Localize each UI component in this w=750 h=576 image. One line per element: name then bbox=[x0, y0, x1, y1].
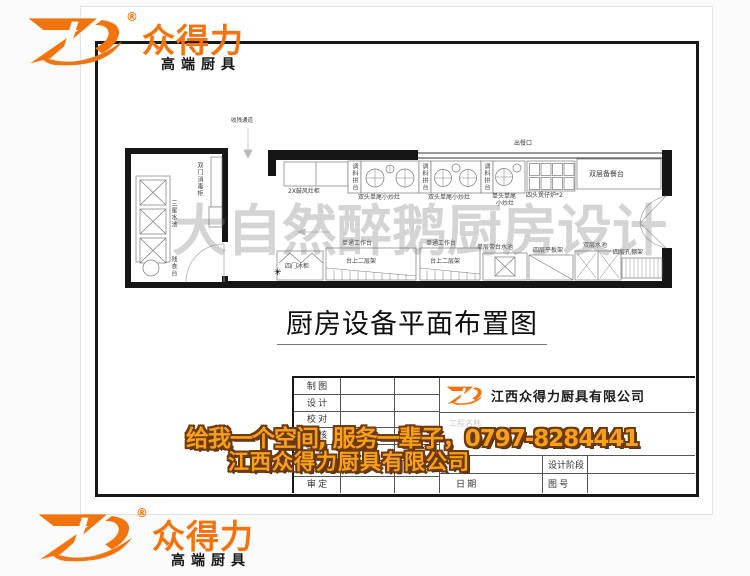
label-prep-counter: 双层备餐台 bbox=[589, 170, 624, 178]
titleblock-date-label: 日 期 bbox=[456, 477, 476, 490]
zd-mark-icon bbox=[15, 10, 137, 70]
titleblock-line bbox=[542, 455, 543, 493]
sheet-canvas: 收残通道 出餐口 双门消毒柜 三星水池 残食台 2X鼓风灶柜 调料拼台 调料拼台… bbox=[0, 0, 750, 530]
titleblock-line bbox=[587, 455, 588, 493]
footer-logo-cutoff: ® 众得力 高端厨具 bbox=[25, 504, 275, 576]
label-star-marker: ✳ bbox=[274, 268, 282, 278]
header-logo: ® 众得力 高端厨具 bbox=[15, 8, 265, 80]
titleblock-row-finalize: 审 定 bbox=[294, 476, 340, 492]
registered-mark: ® bbox=[136, 506, 148, 520]
label-serving-window: 出餐口 bbox=[514, 141, 532, 148]
brand-tagline: 高端厨具 bbox=[161, 54, 241, 74]
titleblock-row-draw: 制 图 bbox=[294, 378, 340, 394]
titleblock-zd-logo bbox=[444, 383, 486, 407]
titleblock-company: 江西众得力厨具有限公司 bbox=[491, 386, 645, 405]
brand-tagline: 高端厨具 bbox=[171, 550, 251, 570]
titleblock-stage-label: 设计阶段 bbox=[548, 458, 584, 471]
ad-company-name: 江西众得力厨具有限公司 bbox=[228, 446, 470, 476]
titleblock-line bbox=[439, 455, 695, 456]
label-passage: 收残通道 bbox=[231, 118, 253, 124]
titleblock-number-label: 图 号 bbox=[548, 477, 568, 490]
titleblock-row-design: 设 计 bbox=[294, 395, 340, 411]
titleblock-line bbox=[439, 412, 695, 413]
drawing-title: 厨房设备平面布置图 bbox=[277, 302, 547, 345]
registered-mark: ® bbox=[126, 10, 138, 24]
titleblock-line bbox=[439, 473, 695, 474]
zd-mark-icon bbox=[25, 506, 147, 566]
watermark-text: 大自然醉鹅厨房设计 bbox=[172, 186, 667, 266]
